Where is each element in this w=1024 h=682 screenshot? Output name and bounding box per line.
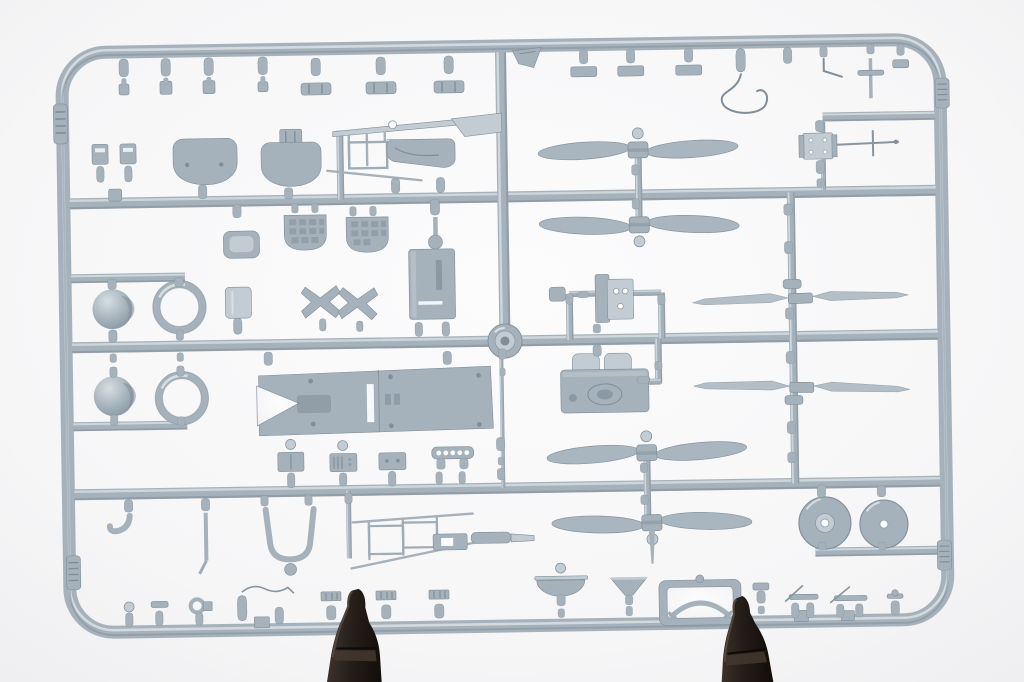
waffle-radiator xyxy=(346,217,389,253)
instrument-plate-part xyxy=(376,591,396,600)
bulkhead-panel xyxy=(261,142,322,187)
photo-of-model-kit-sprue xyxy=(0,0,1024,682)
small-panel xyxy=(225,287,251,318)
deck-plate-part xyxy=(256,366,493,436)
waffle-radiator xyxy=(284,215,327,251)
bulkhead-panel xyxy=(173,138,238,185)
bracket-with-holes xyxy=(803,133,833,159)
tall-box-part xyxy=(409,249,456,320)
sprue-photo-svg xyxy=(0,0,1024,682)
cross-fitting xyxy=(858,70,884,75)
comb-part xyxy=(432,447,474,460)
instrument-plate-part xyxy=(321,592,341,601)
control-rod xyxy=(204,513,209,561)
windscreen-arch-frame xyxy=(659,574,742,625)
instrument-plate-part xyxy=(429,590,449,599)
bracket-with-holes xyxy=(607,279,634,319)
knob-part xyxy=(428,235,442,249)
